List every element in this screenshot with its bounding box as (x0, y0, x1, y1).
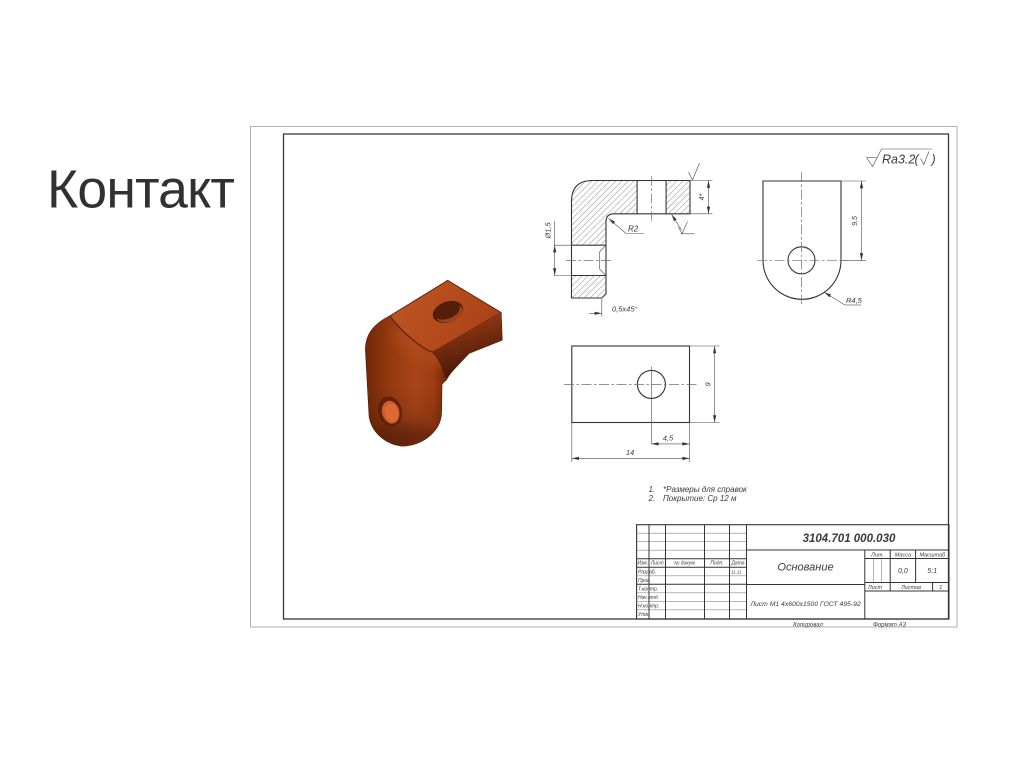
svg-text:9,5: 9,5 (852, 216, 859, 226)
svg-text:Т.контр.: Т.контр. (638, 587, 658, 593)
svg-text:Лист: Лист (650, 561, 664, 567)
svg-text:Основание: Основание (777, 562, 833, 574)
svg-text:Масса: Масса (895, 553, 911, 559)
svg-text:14: 14 (626, 448, 634, 457)
svg-text:R4,5: R4,5 (846, 296, 863, 305)
svg-text:Покрытие: Ср 12 м: Покрытие: Ср 12 м (663, 494, 737, 503)
svg-text:R2: R2 (628, 225, 639, 234)
svg-text:Лит.: Лит. (870, 553, 884, 559)
svg-text:Ra3.2: Ra3.2 (882, 153, 915, 167)
svg-text:Нач.отд.: Нач.отд. (638, 595, 659, 601)
svg-text:Н.контр.: Н.контр. (638, 604, 659, 610)
svg-text:Ø1,5: Ø1,5 (544, 222, 553, 240)
svg-text:3104.701 000.030: 3104.701 000.030 (803, 533, 896, 545)
svg-text:№ докум.: № докум. (674, 561, 696, 567)
svg-text:0,5х45°: 0,5х45° (612, 305, 638, 314)
svg-text:4,5: 4,5 (663, 434, 674, 443)
svg-text:Разраб.: Разраб. (638, 570, 656, 576)
svg-text:1.: 1. (649, 485, 656, 494)
svg-text:Дата: Дата (730, 561, 744, 567)
svg-text:1: 1 (939, 585, 942, 591)
svg-text:Копировал: Копировал (793, 623, 823, 629)
svg-text:Изм.: Изм. (637, 561, 648, 567)
svg-text:Утв.: Утв. (638, 612, 649, 618)
svg-text:Лист: Лист (867, 585, 883, 591)
svg-text:*Размеры для справок: *Размеры для справок (663, 485, 748, 494)
svg-text:4*: 4* (699, 193, 706, 200)
svg-text:Масштаб: Масштаб (919, 553, 946, 559)
svg-text:2.: 2. (648, 494, 656, 503)
svg-text:Подп.: Подп. (710, 561, 723, 567)
svg-text:0,0: 0,0 (898, 568, 908, 575)
svg-text:11.11: 11.11 (731, 570, 742, 575)
svg-text:Пров.: Пров. (638, 578, 651, 584)
svg-text:Лист М1 4х600х1500 ГОСТ 495-92: Лист М1 4х600х1500 ГОСТ 495-92 (749, 601, 861, 608)
svg-text:Формат А3: Формат А3 (873, 623, 906, 629)
svg-text:Контакт: Контакт (47, 161, 234, 220)
svg-text:Листов: Листов (900, 585, 921, 591)
svg-text:5:1: 5:1 (927, 568, 937, 575)
